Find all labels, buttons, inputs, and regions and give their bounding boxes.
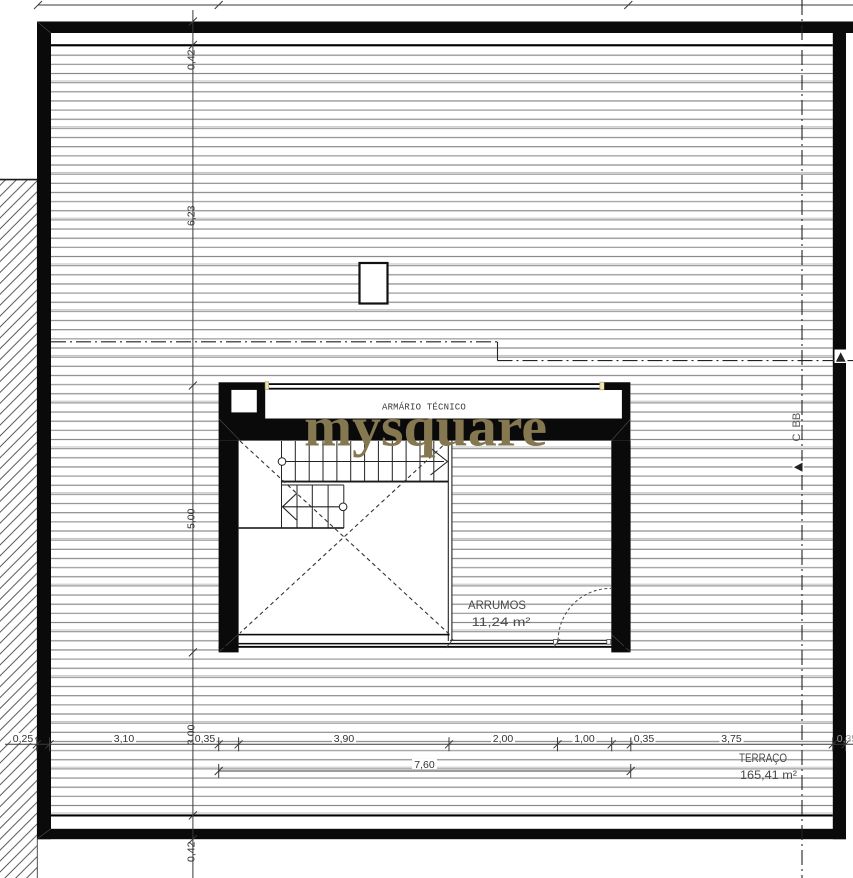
svg-text:mysquare: mysquare xyxy=(304,397,547,459)
svg-text:ARRUMOS: ARRUMOS xyxy=(468,598,526,612)
svg-text:11,24 m²: 11,24 m² xyxy=(472,615,531,629)
svg-text:3,75: 3,75 xyxy=(721,733,742,745)
svg-text:3,10: 3,10 xyxy=(114,733,135,745)
svg-text:0,42: 0,42 xyxy=(186,49,198,70)
svg-text:0,25: 0,25 xyxy=(13,733,34,745)
svg-text:0,35: 0,35 xyxy=(837,733,853,745)
svg-text:1,00: 1,00 xyxy=(574,733,595,745)
svg-text:C_BB: C_BB xyxy=(791,413,803,442)
svg-text:5,00: 5,00 xyxy=(186,508,198,529)
svg-text:0,35: 0,35 xyxy=(195,733,216,745)
svg-text:0,35: 0,35 xyxy=(634,733,655,745)
svg-text:7,60: 7,60 xyxy=(414,759,435,771)
svg-text:0,42: 0,42 xyxy=(186,841,198,862)
svg-text:6,23: 6,23 xyxy=(186,205,198,226)
svg-text:165,41 m²: 165,41 m² xyxy=(740,768,797,782)
svg-text:TERRAÇO: TERRAÇO xyxy=(739,751,787,765)
svg-text:2,00: 2,00 xyxy=(493,733,514,745)
svg-text:3,90: 3,90 xyxy=(334,733,355,745)
